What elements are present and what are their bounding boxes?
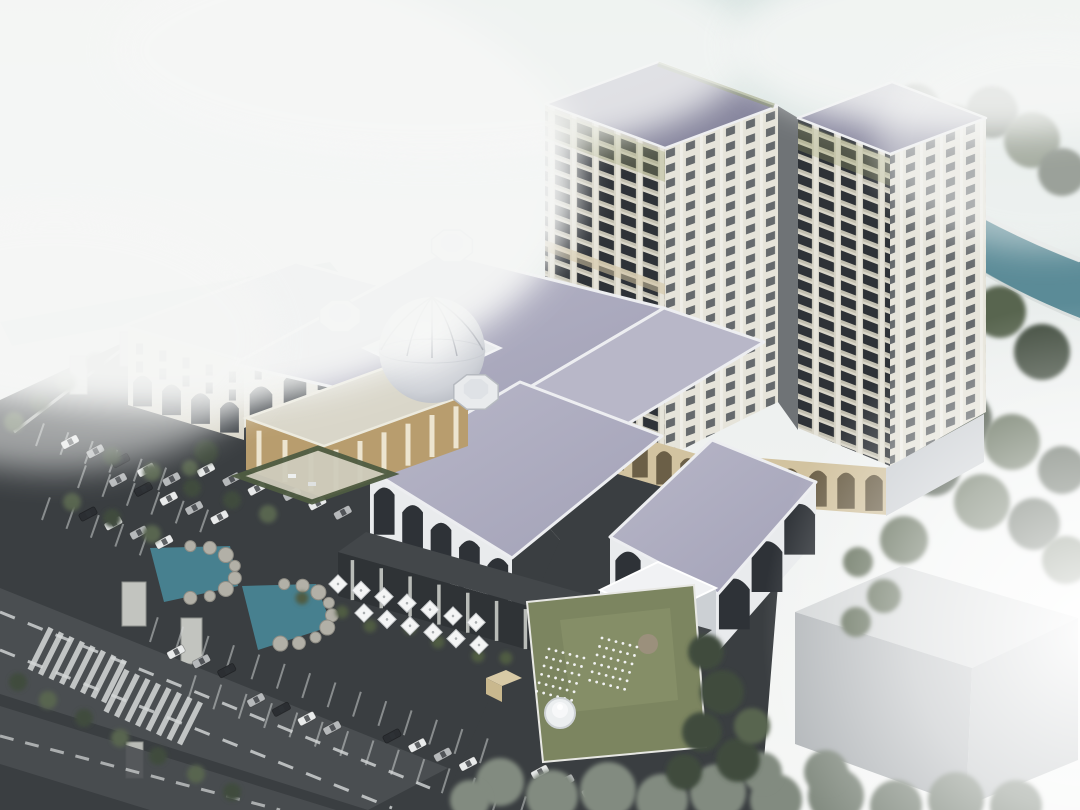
ceremony-chair — [612, 676, 615, 679]
ceremony-chair — [540, 673, 543, 676]
hedge-shrub — [364, 620, 377, 633]
landscape-rock — [323, 597, 334, 608]
gazebo-finial — [557, 704, 563, 710]
ceremony-chair — [555, 649, 558, 652]
tree — [666, 754, 702, 790]
hedge-shrub — [336, 606, 349, 619]
ceremony-chair — [552, 685, 555, 688]
ceremony-chair — [602, 682, 605, 685]
ceremony-chair — [621, 669, 624, 672]
arched-window — [374, 488, 395, 535]
landscape-rock — [273, 636, 288, 651]
tree — [259, 505, 277, 523]
ceremony-chair — [609, 684, 612, 687]
ceremony-chair — [568, 680, 571, 683]
ceremony-chair — [543, 664, 546, 667]
ceremony-chair — [580, 665, 583, 668]
ceremony-chair — [566, 661, 569, 664]
ceremony-chair — [623, 688, 626, 691]
architectural-rendering-canvas — [0, 0, 1080, 810]
ceremony-chair — [573, 663, 576, 666]
tree — [103, 509, 121, 527]
ceremony-chair — [601, 637, 604, 640]
ceremony-chair — [548, 648, 551, 651]
tree — [688, 634, 724, 670]
ceremony-chair — [575, 682, 578, 685]
tree — [223, 783, 241, 801]
ceremony-chair — [631, 662, 634, 665]
ceremony-chair — [617, 659, 620, 662]
landscape-rock — [218, 548, 233, 563]
window — [437, 585, 441, 625]
ceremony-chair — [588, 679, 591, 682]
landscape-rock — [311, 585, 326, 600]
ceremony-chair — [554, 677, 557, 680]
ceremony-chair — [552, 658, 555, 661]
wedding-lawn — [527, 585, 706, 762]
tree — [682, 712, 722, 752]
ceremony-chair — [608, 638, 611, 641]
ceremony-chair — [636, 646, 639, 649]
ceremony-chair — [619, 650, 622, 653]
dropoff-car — [308, 482, 316, 486]
tree — [716, 738, 760, 782]
window — [454, 406, 459, 448]
window — [406, 424, 411, 466]
window — [466, 593, 470, 633]
hedge-shrub — [500, 652, 513, 665]
ceremony-chair — [596, 653, 599, 656]
hedge-shrub — [296, 592, 309, 605]
ceremony-chair — [616, 686, 619, 689]
tower-link-wing — [778, 106, 798, 430]
landscape-rock — [320, 620, 335, 635]
ceremony-chair — [573, 690, 576, 693]
turret-cap — [464, 379, 488, 399]
hotel-complex-aerial-rendering — [0, 0, 1080, 810]
ceremony-chair — [610, 657, 613, 660]
tree — [111, 729, 129, 747]
ceremony-chair — [561, 678, 564, 681]
ceremony-chair — [593, 662, 596, 665]
tree — [183, 479, 201, 497]
ceremony-chair — [595, 681, 598, 684]
tree — [734, 708, 770, 744]
ceremony-chair — [615, 640, 618, 643]
ceremony-chair — [612, 649, 615, 652]
ceremony-chair — [605, 647, 608, 650]
window — [351, 560, 355, 600]
ceremony-chair — [545, 656, 548, 659]
ceremony-chair — [576, 655, 579, 658]
dropoff-car — [288, 474, 296, 478]
ceremony-chair — [626, 679, 629, 682]
ceremony-chair — [628, 671, 631, 674]
tree — [187, 765, 205, 783]
landscape-rock — [218, 581, 233, 596]
landscape-rock — [229, 560, 240, 571]
gatepost — [122, 582, 146, 626]
ceremony-chair — [569, 653, 572, 656]
ceremony-chair — [598, 645, 601, 648]
landscape-rock — [184, 591, 197, 604]
window — [495, 601, 499, 641]
tree — [75, 709, 93, 727]
ceremony-chair — [622, 642, 625, 645]
ceremony-chair — [557, 668, 560, 671]
tree — [39, 691, 57, 709]
ceremony-chair — [559, 687, 562, 690]
wedding-gazebo — [545, 698, 575, 728]
landscape-rock — [279, 579, 290, 590]
tree — [194, 440, 218, 464]
landscape-rock — [204, 591, 215, 602]
tree — [149, 747, 167, 765]
ceremony-chair — [583, 657, 586, 660]
ceremony-chair — [626, 652, 629, 655]
ceremony-chair — [605, 674, 608, 677]
tree — [143, 463, 161, 481]
ceremony-chair — [545, 683, 548, 686]
landscape-rock — [310, 632, 321, 643]
ceremony-chair — [562, 651, 565, 654]
ceremony-chair — [598, 672, 601, 675]
ceremony-chair — [603, 655, 606, 658]
tree — [9, 673, 27, 691]
landscape-rock — [185, 541, 196, 552]
window — [524, 609, 528, 649]
ceremony-chair — [600, 664, 603, 667]
tree — [223, 491, 241, 509]
ceremony-chair — [619, 678, 622, 681]
ceremony-chair — [547, 675, 550, 678]
ceremony-chair — [624, 661, 627, 664]
ceremony-chair — [564, 670, 567, 673]
ceremony-chair — [614, 667, 617, 670]
ceremony-chair — [571, 672, 574, 675]
ceremony-chair — [566, 689, 569, 692]
ceremony-chair — [591, 670, 594, 673]
landscape-rock — [292, 637, 305, 650]
landscape-rock — [203, 541, 216, 554]
window — [430, 415, 435, 457]
ceremony-chair — [633, 654, 636, 657]
tower-1-side-facade — [665, 106, 778, 458]
ceremony-chair — [542, 692, 545, 695]
tree — [143, 525, 161, 543]
tree — [182, 460, 198, 476]
ceremony-chair — [550, 666, 553, 669]
ceremony-chair — [559, 660, 562, 663]
ceremony-chair — [578, 673, 581, 676]
gatepost — [181, 618, 202, 664]
tree — [63, 493, 81, 511]
ceremony-chair — [538, 681, 541, 684]
ceremony-chair — [629, 644, 632, 647]
ceremony-chair — [535, 690, 538, 693]
ceremony-chair — [607, 666, 610, 669]
tree — [700, 670, 744, 714]
landscape-rock — [296, 579, 309, 592]
ceremony-chair — [549, 693, 552, 696]
petal-circle — [638, 634, 658, 654]
